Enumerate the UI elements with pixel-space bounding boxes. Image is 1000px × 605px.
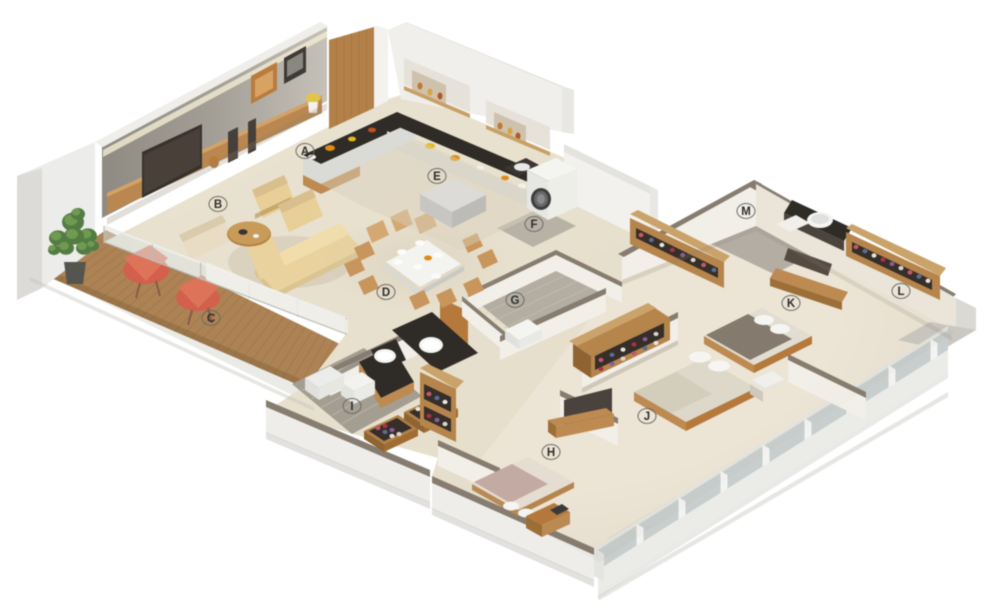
svg-text:D: D xyxy=(382,287,390,299)
svg-text:G: G xyxy=(511,295,520,307)
svg-text:H: H xyxy=(547,447,555,459)
svg-text:L: L xyxy=(897,286,904,298)
svg-text:J: J xyxy=(644,411,650,423)
svg-text:B: B xyxy=(214,199,222,211)
svg-text:C: C xyxy=(207,313,215,325)
svg-text:K: K xyxy=(787,298,796,310)
svg-text:I: I xyxy=(350,401,353,413)
svg-text:M: M xyxy=(741,206,751,218)
svg-text:E: E xyxy=(433,171,441,183)
svg-text:A: A xyxy=(301,146,309,158)
svg-text:F: F xyxy=(530,219,537,231)
